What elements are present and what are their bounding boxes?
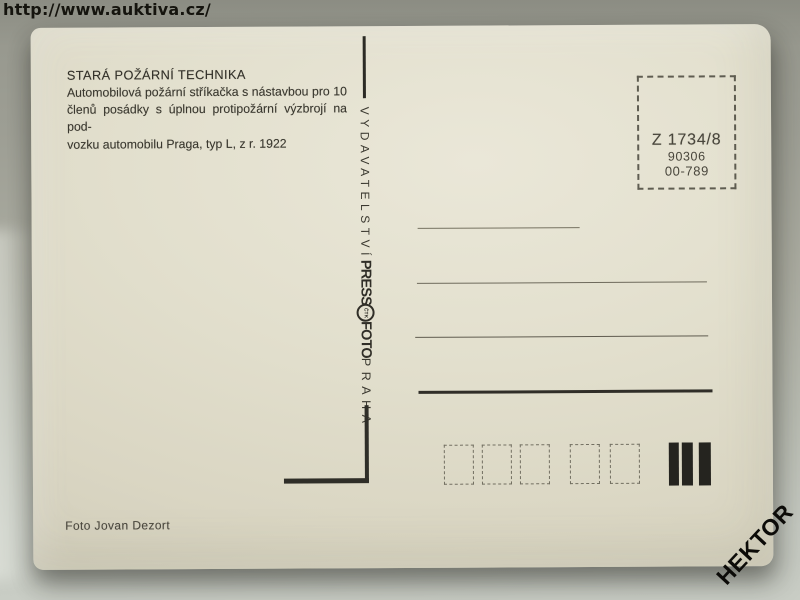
postal-code-box [520,444,550,484]
publisher-imprint-column: VYDAVATELSTVÍ PRESS ČTK FOTO PRAHA [353,107,379,400]
divider-top-rule [363,36,366,98]
postal-code-box [610,444,640,484]
description-line: členů posádky s úplnou protipožární výzb… [67,100,347,136]
auction-photo: http://www.auktiva.cz/ STARÁ POŽÁRNÍ TEC… [0,0,800,600]
description-line: vozku automobilu Praga, typ L, z r. 1922 [67,135,347,154]
catalog-number: 90306 [639,149,734,163]
address-line [415,335,708,338]
address-line [417,281,707,284]
sorting-mark-bar [682,442,693,485]
postal-code-box [444,445,474,485]
postcard-description: Automobilová požární stříkačka s nástavb… [67,83,347,153]
divider-bottom-rule [365,405,369,482]
publisher-word: VYDAVATELSTVÍ [358,107,373,260]
catalog-code: Z 1734/8 [639,131,734,149]
description-line: Automobilová požární stříkačka s nástavb… [67,83,347,102]
postal-code-box [570,444,600,484]
postcard-title: STARÁ POŽÁRNÍ TECHNIKA [67,67,246,83]
sorting-mark-bar [699,442,711,485]
stamp-catalog-box: Z 1734/8 90306 00-789 [637,75,737,190]
postcard-back: STARÁ POŽÁRNÍ TECHNIKA Automobilová požá… [31,24,774,570]
address-line [418,389,712,394]
sorting-mark-bar [669,443,679,486]
photo-credit: Foto Jovan Dezort [65,518,170,533]
postal-code-box [482,444,512,484]
source-url-watermark: http://www.auktiva.cz/ [3,0,211,19]
pressfoto-logo-press: PRESS [357,260,373,305]
address-line [418,227,580,229]
pressfoto-logo: PRESS ČTK FOTO [356,260,375,358]
ctk-emblem-icon: ČTK [357,304,375,322]
divider-corner-rule [284,478,369,483]
catalog-order-number: 00-789 [639,163,734,178]
pressfoto-logo-foto: FOTO [358,321,374,358]
